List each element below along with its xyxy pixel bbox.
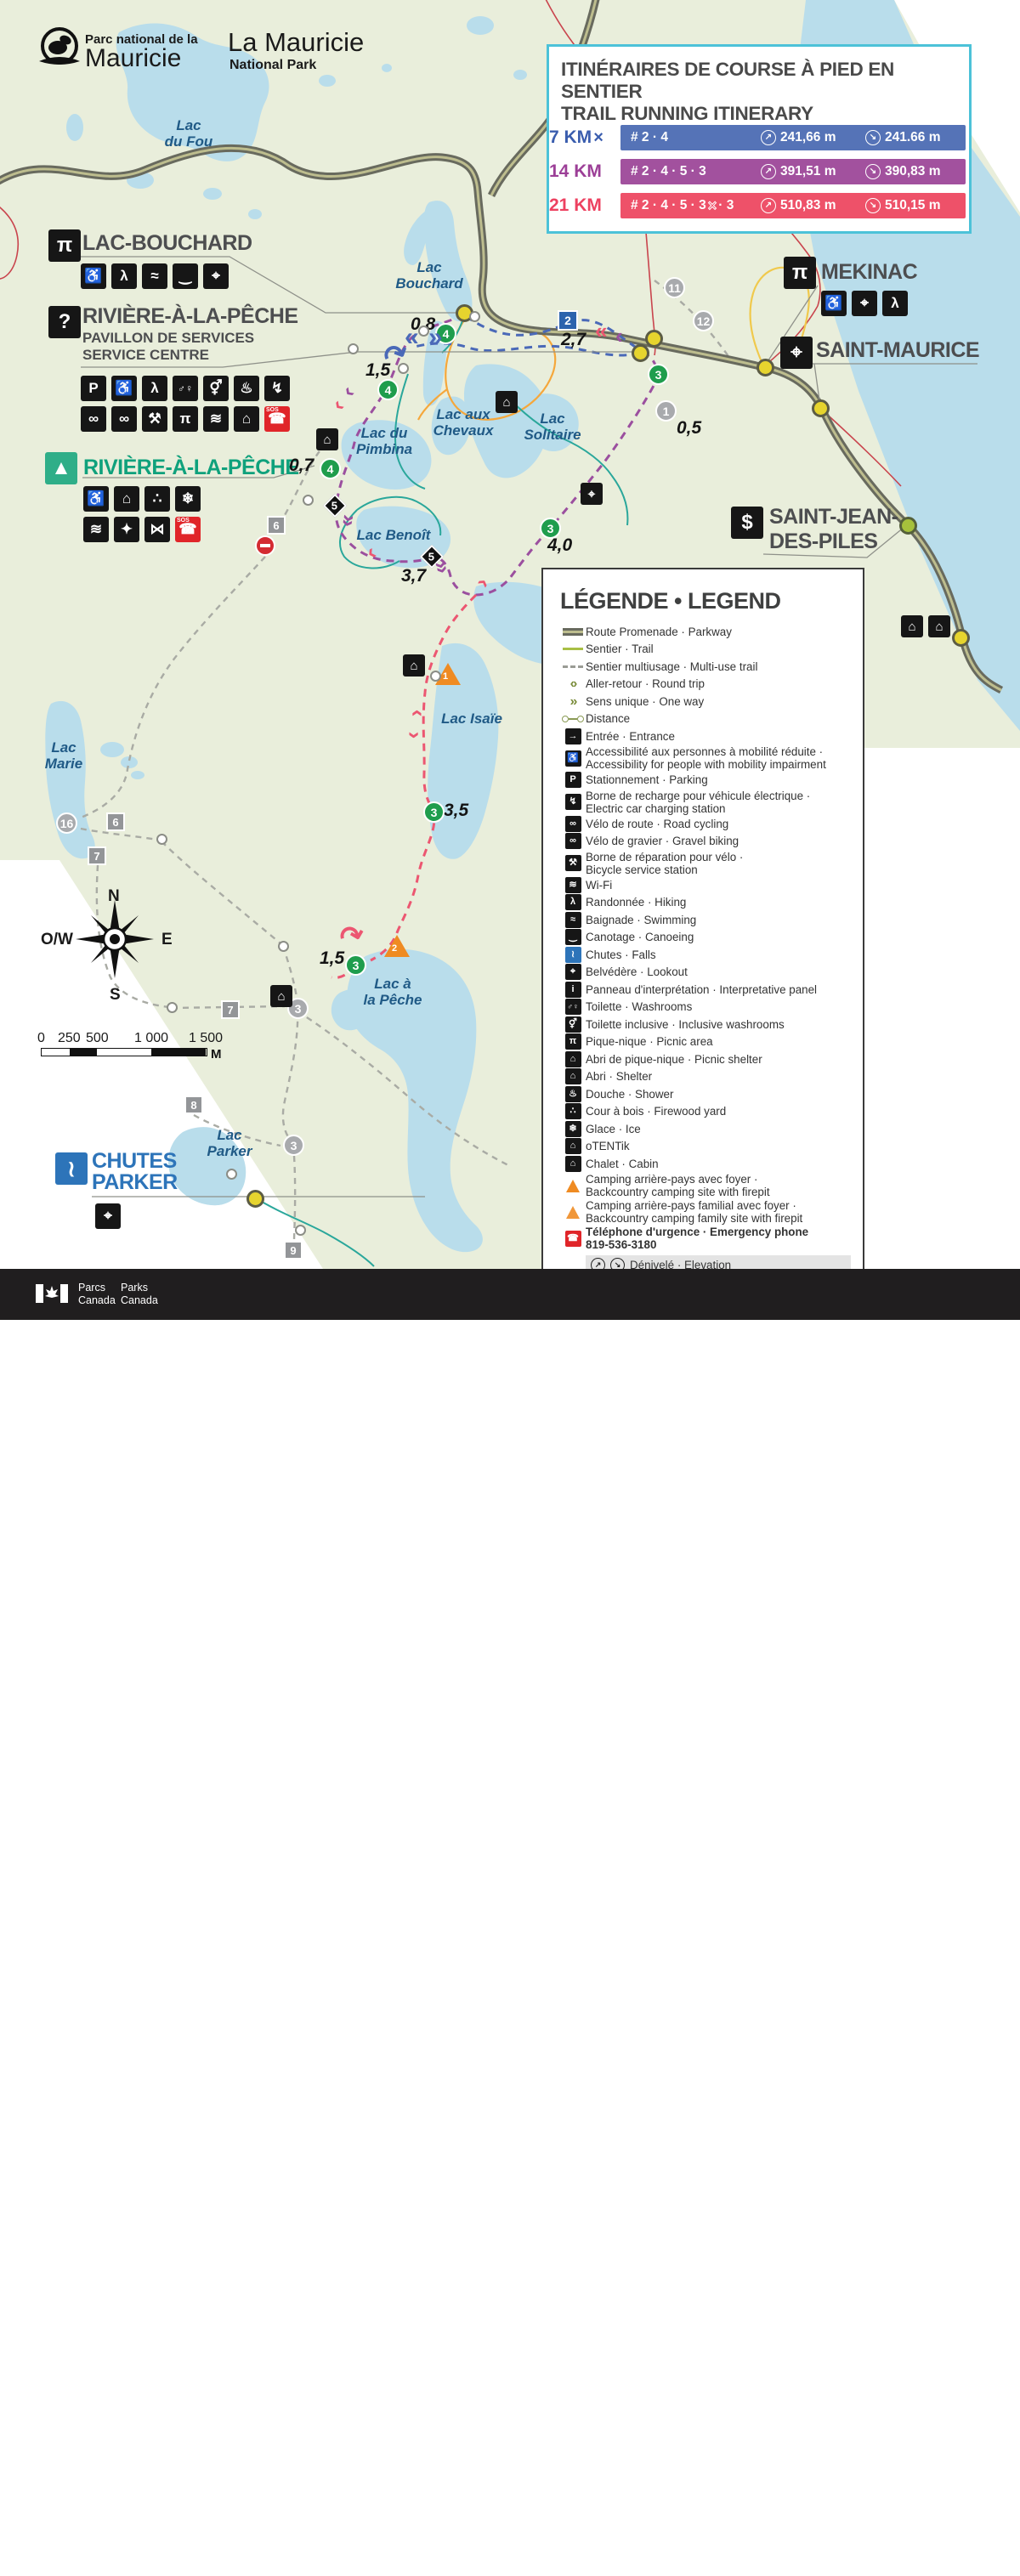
itinerary-title-en: TRAIL RUNNING ITINERARY: [561, 103, 969, 125]
picnic-icon: π: [565, 1033, 581, 1050]
trail-marker-gray: 16: [56, 812, 77, 834]
elevation-gain-icon: ↗: [761, 198, 776, 213]
legend-label: Abri de pique-nique · Picnic shelter: [586, 1053, 851, 1066]
wheelchair-icon: ♿: [821, 291, 847, 316]
itinerary-row-21km: 21 KM # 2 · 4 · 5 · 3 × · 3 ↗510,83 m ↘5…: [549, 193, 969, 218]
sos-phone-icon: SOS☎: [264, 406, 290, 432]
ev-charging-icon: ↯: [264, 376, 290, 401]
segments-21km-post: · 3: [718, 198, 734, 213]
segments-7km: # 2 · 4: [631, 130, 668, 145]
legend-label: Douche · Shower: [586, 1088, 851, 1101]
distance-7km: 7 KM: [549, 127, 592, 148]
parking-icon: P: [565, 772, 581, 788]
wifi-icon: ≋: [83, 517, 109, 542]
legend-label: Camping arrière-pays familial avec foyer…: [586, 1199, 851, 1225]
cabin-icon: ⌂: [928, 615, 950, 637]
wifi-icon: ≋: [203, 406, 229, 432]
cabin-icon: ⌂: [901, 615, 923, 637]
hiking-icon: λ: [111, 263, 137, 289]
scale-bar: [41, 1048, 207, 1056]
elevation-gain-icon: ↗: [761, 130, 776, 145]
lookout-icon: ⌖: [581, 483, 603, 505]
itinerary-row-7km: 7 KM× # 2 · 4 ↗241,66 m ↘241.66 m: [549, 125, 969, 150]
swimming-icon: ≈: [565, 912, 581, 928]
trail-cross-icon: ×: [593, 128, 603, 148]
swimming-icon: ≈: [142, 263, 167, 289]
compass-east-label: E: [161, 931, 173, 949]
ice-icon: ❄: [565, 1121, 581, 1137]
gravel-biking-icon: ∞: [81, 406, 106, 432]
legend-label: Sentier multiusage · Multi-use trail: [586, 660, 851, 673]
shower-icon: ♨: [565, 1086, 581, 1102]
trail-marker-green: 4: [320, 458, 341, 479]
parkway-swatch: [563, 628, 583, 636]
route-arrow-icon: ‹: [615, 325, 623, 347]
backcountry-campsite-icon: [566, 1180, 580, 1192]
entrance-dot: [632, 344, 649, 362]
fish-icon: ⋈: [144, 517, 170, 542]
trail-marker-gray: 12: [693, 310, 714, 331]
footer-parcs-canada: Parcs Canada: [78, 1282, 116, 1307]
picnic-icon: π: [48, 229, 81, 262]
inclusive-washroom-icon: ⚥: [203, 376, 229, 401]
elevation-loss-icon: ↘: [865, 130, 881, 145]
legend-label: Toilette inclusive · Inclusive washrooms: [586, 1018, 851, 1031]
footer-parks-canada: Parks Canada: [121, 1282, 158, 1307]
segments-14km: # 2 · 4 · 5 · 3: [631, 164, 706, 179]
distance-node: [303, 495, 314, 506]
wifi-icon: ≋: [565, 877, 581, 893]
trail-marker-gray: 1: [655, 400, 677, 422]
picnic-shelter-icon: ⌂: [565, 1051, 581, 1067]
gain-7km: 241,66 m: [780, 130, 836, 145]
entrance-dot: [645, 330, 663, 348]
phone-glyph: ☎: [268, 410, 286, 427]
lake-label: Lac à la Pêche: [350, 976, 435, 1008]
itinerary-panel: ITINÉRAIRES DE COURSE À PIED EN SENTIER …: [547, 44, 972, 234]
canada-wordmark: Canada⚑: [911, 2549, 983, 2576]
trail-marker-blue: 2: [558, 310, 578, 331]
distance-node: [295, 1225, 306, 1236]
callout-rap-sub2: SERVICE CENTRE: [82, 347, 209, 364]
legend-label: Abri · Shelter: [586, 1070, 851, 1083]
backcountry-campsite-marker: 2: [384, 935, 410, 957]
legend-label: Chutes · Falls: [586, 948, 851, 961]
picnic-icon: π: [784, 257, 816, 289]
distance-label: 2,7: [561, 330, 586, 350]
legend-label: Distance: [586, 712, 851, 725]
canoeing-icon: ‿: [173, 263, 198, 289]
compass-west-label: O/W: [41, 931, 73, 949]
legend-label: Cour à bois · Firewood yard: [586, 1105, 851, 1118]
distance-node: [278, 941, 289, 952]
distance-swatch: [560, 716, 586, 722]
distance-label: 3,7: [401, 566, 426, 586]
lake-label: Lac Parker: [191, 1127, 268, 1159]
legend-label: Toilette · Washrooms: [586, 1000, 851, 1013]
campground-tent-icon: ▲: [45, 452, 77, 484]
sos-phone-icon: ☎: [565, 1231, 581, 1247]
trail-marker-gray: 3: [283, 1135, 304, 1156]
legend-label: Borne de recharge pour véhicule électriq…: [586, 790, 851, 815]
distance-node: [469, 311, 480, 322]
route-arrow-icon: ›: [404, 710, 426, 717]
shower-icon: ♨: [234, 376, 259, 401]
backcountry-family-campsite-icon: [566, 1206, 580, 1219]
bike-repair-icon: ⚒: [565, 855, 581, 871]
sos-phone-icon: SOS☎: [175, 517, 201, 542]
multiuse-swatch: [563, 665, 583, 668]
interpretive-panel-icon: i: [565, 982, 581, 998]
lookout-icon: ⌖: [95, 1203, 121, 1229]
entrance-dot: [952, 629, 970, 647]
gain-14km: 391,51 m: [780, 164, 836, 179]
legend-label: Baignade · Swimming: [586, 914, 851, 926]
trail-marker-green: 3: [423, 801, 445, 823]
distance-node: [430, 671, 441, 682]
scale-tick: 250: [58, 1031, 81, 1046]
wheelchair-icon: ♿: [83, 486, 109, 512]
lookout-icon: ⌖: [203, 263, 229, 289]
phone-glyph: ☎: [178, 521, 196, 538]
route-arrow-icon: »: [428, 325, 443, 350]
hiking-icon: λ: [882, 291, 908, 316]
legend-label: Camping arrière-pays avec foyer · Backco…: [586, 1173, 851, 1198]
rap-camp-amenities-row1: ♿ ⌂ ∴ ❄: [83, 486, 201, 512]
legend-label: Chalet · Cabin: [586, 1158, 851, 1170]
elevation-gain-icon: ↗: [761, 164, 776, 179]
rap-services-amenities-row2: ∞ ∞ ⚒ π ≋ ⌂ SOS☎: [81, 406, 290, 432]
callout-mekinac-title: MEKINAC: [821, 260, 917, 285]
sos-label: SOS: [177, 518, 190, 524]
lake-label: Lac du Fou: [146, 117, 231, 150]
distance-label: 0,5: [677, 418, 701, 439]
canada-wordmark-flag: ⚑: [974, 2547, 981, 2556]
legend-panel: LÉGENDE • LEGEND Route Promenade · Parkw…: [541, 568, 864, 1271]
shelter-icon: ⌂: [270, 985, 292, 1007]
legend-label: Glace · Ice: [586, 1123, 851, 1135]
distance-node: [226, 1169, 237, 1180]
legend-title: LÉGENDE • LEGEND: [560, 588, 851, 614]
wheelchair-icon: ♿: [81, 263, 106, 289]
trail-marker-green: 3: [345, 954, 366, 976]
legend-label: Wi-Fi: [586, 879, 851, 892]
callout-lac-bouchard-title: LAC-BOUCHARD: [82, 231, 252, 256]
route-arrow-icon: «: [595, 320, 607, 342]
legend-label: Téléphone d'urgence · Emergency phone 81…: [586, 1226, 851, 1251]
compass-north-label: N: [108, 887, 120, 906]
logo-title-en-big: La Mauricie: [228, 27, 364, 58]
entrance-dot-green: [899, 517, 917, 535]
mekinac-amenities: ♿ ⌖ λ: [821, 291, 908, 316]
callout-rap-services-title: RIVIÈRE-À-LA-PÊCHE: [82, 304, 298, 329]
distance-node: [167, 1002, 178, 1013]
sos-label: SOS: [266, 407, 279, 413]
fee-kiosk-icon: $: [731, 507, 763, 539]
trail-marker-green: 4: [377, 379, 399, 400]
gain-21km: 510,83 m: [780, 198, 836, 213]
distance-node: [348, 343, 359, 354]
distance-label: 1,5: [320, 948, 344, 969]
road-cycling-icon: ∞: [565, 816, 581, 832]
roundtrip-icon: ‹›: [560, 677, 586, 690]
logo-title-fr-big: Mauricie: [85, 44, 181, 73]
loss-14km: 390,83 m: [885, 164, 941, 179]
lake-label: Lac Benoît: [347, 527, 440, 543]
canoeing-icon: ‿: [565, 929, 581, 945]
trail-cross-icon: ×: [708, 197, 717, 215]
scale-tick: 1 000: [134, 1031, 168, 1046]
ice-icon: ❄: [175, 486, 201, 512]
washrooms-icon: ♂♀: [565, 999, 581, 1015]
legend-label: Stationnement · Parking: [586, 773, 851, 786]
footer-bar: Parcs Canada Parks Canada Canada⚑: [0, 1269, 1020, 1320]
legend-label: Aller-retour · Round trip: [586, 677, 851, 690]
scale-unit: M: [211, 1047, 222, 1062]
road-marker-square: 7: [88, 846, 106, 865]
firewood-icon: ∴: [565, 1103, 581, 1119]
entrance-dot: [812, 399, 830, 417]
wheelchair-icon: ♿: [111, 376, 137, 401]
legend-label: Vélo de gravier · Gravel biking: [586, 835, 851, 847]
lac-bouchard-amenities: ♿ λ ≈ ‿ ⌖: [81, 263, 229, 289]
lake-label: Lac aux Chevaux: [421, 406, 506, 439]
picnic-icon: π: [173, 406, 198, 432]
rap-camp-amenities-row2: ≋ ✦ ⋈ SOS☎: [83, 517, 201, 542]
otentik-icon: ⌂: [114, 486, 139, 512]
loss-21km: 510,15 m: [885, 198, 941, 213]
scale-tick: 0: [37, 1031, 45, 1046]
legend-label: Belvédère · Lookout: [586, 965, 851, 978]
shelter-icon: ⌂: [565, 1068, 581, 1084]
washrooms-icon: ♂♀: [173, 376, 198, 401]
elevation-loss-icon: ↘: [865, 164, 881, 179]
segments-21km-pre: # 2 · 4 · 5 · 3: [631, 198, 706, 213]
itinerary-title-fr: ITINÉRAIRES DE COURSE À PIED EN SENTIER: [561, 59, 969, 103]
road-marker-square: 9: [284, 1241, 303, 1260]
entrance-icon: →: [565, 728, 581, 744]
inclusive-washroom-icon: ⚥: [565, 1016, 581, 1033]
loss-7km: 241.66 m: [885, 130, 941, 145]
elevation-loss-icon: ↘: [865, 198, 881, 213]
distance-21km: 21 KM: [549, 195, 602, 216]
legend-label: Vélo de route · Road cycling: [586, 818, 851, 830]
trail-marker-green: 3: [648, 364, 669, 385]
ev-charging-icon: ↯: [565, 794, 581, 810]
falls-icon: ≀: [565, 947, 581, 963]
canada-flag-icon: [36, 1284, 68, 1303]
scale-tick: 500: [86, 1031, 109, 1046]
lookout-icon: ⌖: [780, 337, 813, 369]
entrance-dot: [246, 1190, 264, 1208]
legend-label: Pique-nique · Picnic area: [586, 1035, 851, 1048]
callout-saint-maurice-title: SAINT-MAURICE: [816, 338, 979, 363]
legend-label: Canotage · Canoeing: [586, 931, 851, 943]
entrance-dot: [756, 359, 774, 376]
shelter-icon: ⌂: [403, 654, 425, 677]
scale-tick: 1 500: [189, 1031, 223, 1046]
route-arrow-icon: «: [405, 325, 419, 350]
legend-label: Route Promenade · Parkway: [586, 626, 851, 638]
road-marker-square: 8: [184, 1096, 203, 1114]
lake-label: Lac Isaïe: [429, 711, 514, 727]
trail-marker-gray: 11: [664, 277, 685, 298]
lake-label: Lac Marie: [25, 739, 102, 772]
trail-swatch: [563, 648, 583, 650]
parks-canada-beaver-logo: [36, 24, 83, 71]
falls-icon: ≀: [55, 1152, 88, 1185]
callout-saint-jean-title: SAINT-JEAN- DES-PILES: [769, 505, 898, 554]
lake-label: Lac du Pimbina: [342, 425, 427, 457]
shelter-icon: ⌂: [316, 428, 338, 450]
info-question-icon: ?: [48, 306, 81, 338]
legend-label: Randonnée · Hiking: [586, 896, 851, 909]
cabin-icon: ⌂: [565, 1156, 581, 1172]
route-arrow-icon: ›: [404, 732, 426, 739]
lookout-icon: ⌖: [852, 291, 877, 316]
legend-label: Entrée · Entrance: [586, 730, 851, 743]
wheelchair-icon: ♿: [565, 750, 581, 767]
picnic-shelter-icon: ⌂: [234, 406, 259, 432]
bike-repair-icon: ⚒: [142, 406, 167, 432]
logo-title-en-small: National Park: [229, 58, 316, 73]
callout-rap-sub1: PAVILLON DE SERVICES: [82, 330, 254, 347]
itinerary-row-14km: 14 KM # 2 · 4 · 5 · 3 ↗391,51 m ↘390,83 …: [549, 159, 969, 184]
lake-label: Lac Solitaire: [510, 410, 595, 443]
road-marker-square: 7: [221, 1000, 240, 1019]
playground-icon: ✦: [114, 517, 139, 542]
legend-label: Sentier · Trail: [586, 643, 851, 655]
distance-label: 0,7: [289, 456, 314, 476]
map-edge-cut: [864, 748, 1020, 1269]
shelter-icon: ⌂: [496, 391, 518, 413]
trail-marker-green: 3: [540, 518, 561, 539]
distance-node: [156, 834, 167, 845]
distance-label: 3,5: [444, 801, 468, 821]
hiking-icon: λ: [142, 376, 167, 401]
no-entry-icon: [255, 535, 275, 556]
lookout-icon: ⌖: [565, 964, 581, 980]
gravel-biking-icon: ∞: [565, 833, 581, 849]
road-cycling-icon: ∞: [111, 406, 137, 432]
road-marker-square: 6: [106, 812, 125, 831]
legend-label: Panneau d'interprétation · Interpretativ…: [586, 983, 851, 996]
hiking-icon: λ: [565, 894, 581, 910]
otentik-icon: ⌂: [565, 1138, 581, 1154]
legend-label: Borne de réparation pour vélo · Bicycle …: [586, 851, 851, 876]
lake-label: Lac Bouchard: [387, 259, 472, 292]
compass-south-label: S: [110, 986, 121, 1005]
oneway-icon: »: [560, 695, 586, 708]
callout-chutes-parker-title: CHUTES PARKER: [92, 1151, 178, 1193]
parking-icon: P: [81, 376, 106, 401]
legend-label: Accessibilité aux personnes à mobilité r…: [586, 745, 851, 771]
road-marker-square: 6: [267, 516, 286, 535]
firewood-icon: ∴: [144, 486, 170, 512]
legend-label: oTENTik: [586, 1140, 851, 1152]
rap-services-amenities-row1: P ♿ λ ♂♀ ⚥ ♨ ↯: [81, 376, 290, 401]
distance-14km: 14 KM: [549, 161, 602, 182]
callout-rap-camp-title: RIVIÈRE-À-LA-PÊCHE: [83, 456, 299, 480]
legend-label: Sens unique · One way: [586, 695, 851, 708]
